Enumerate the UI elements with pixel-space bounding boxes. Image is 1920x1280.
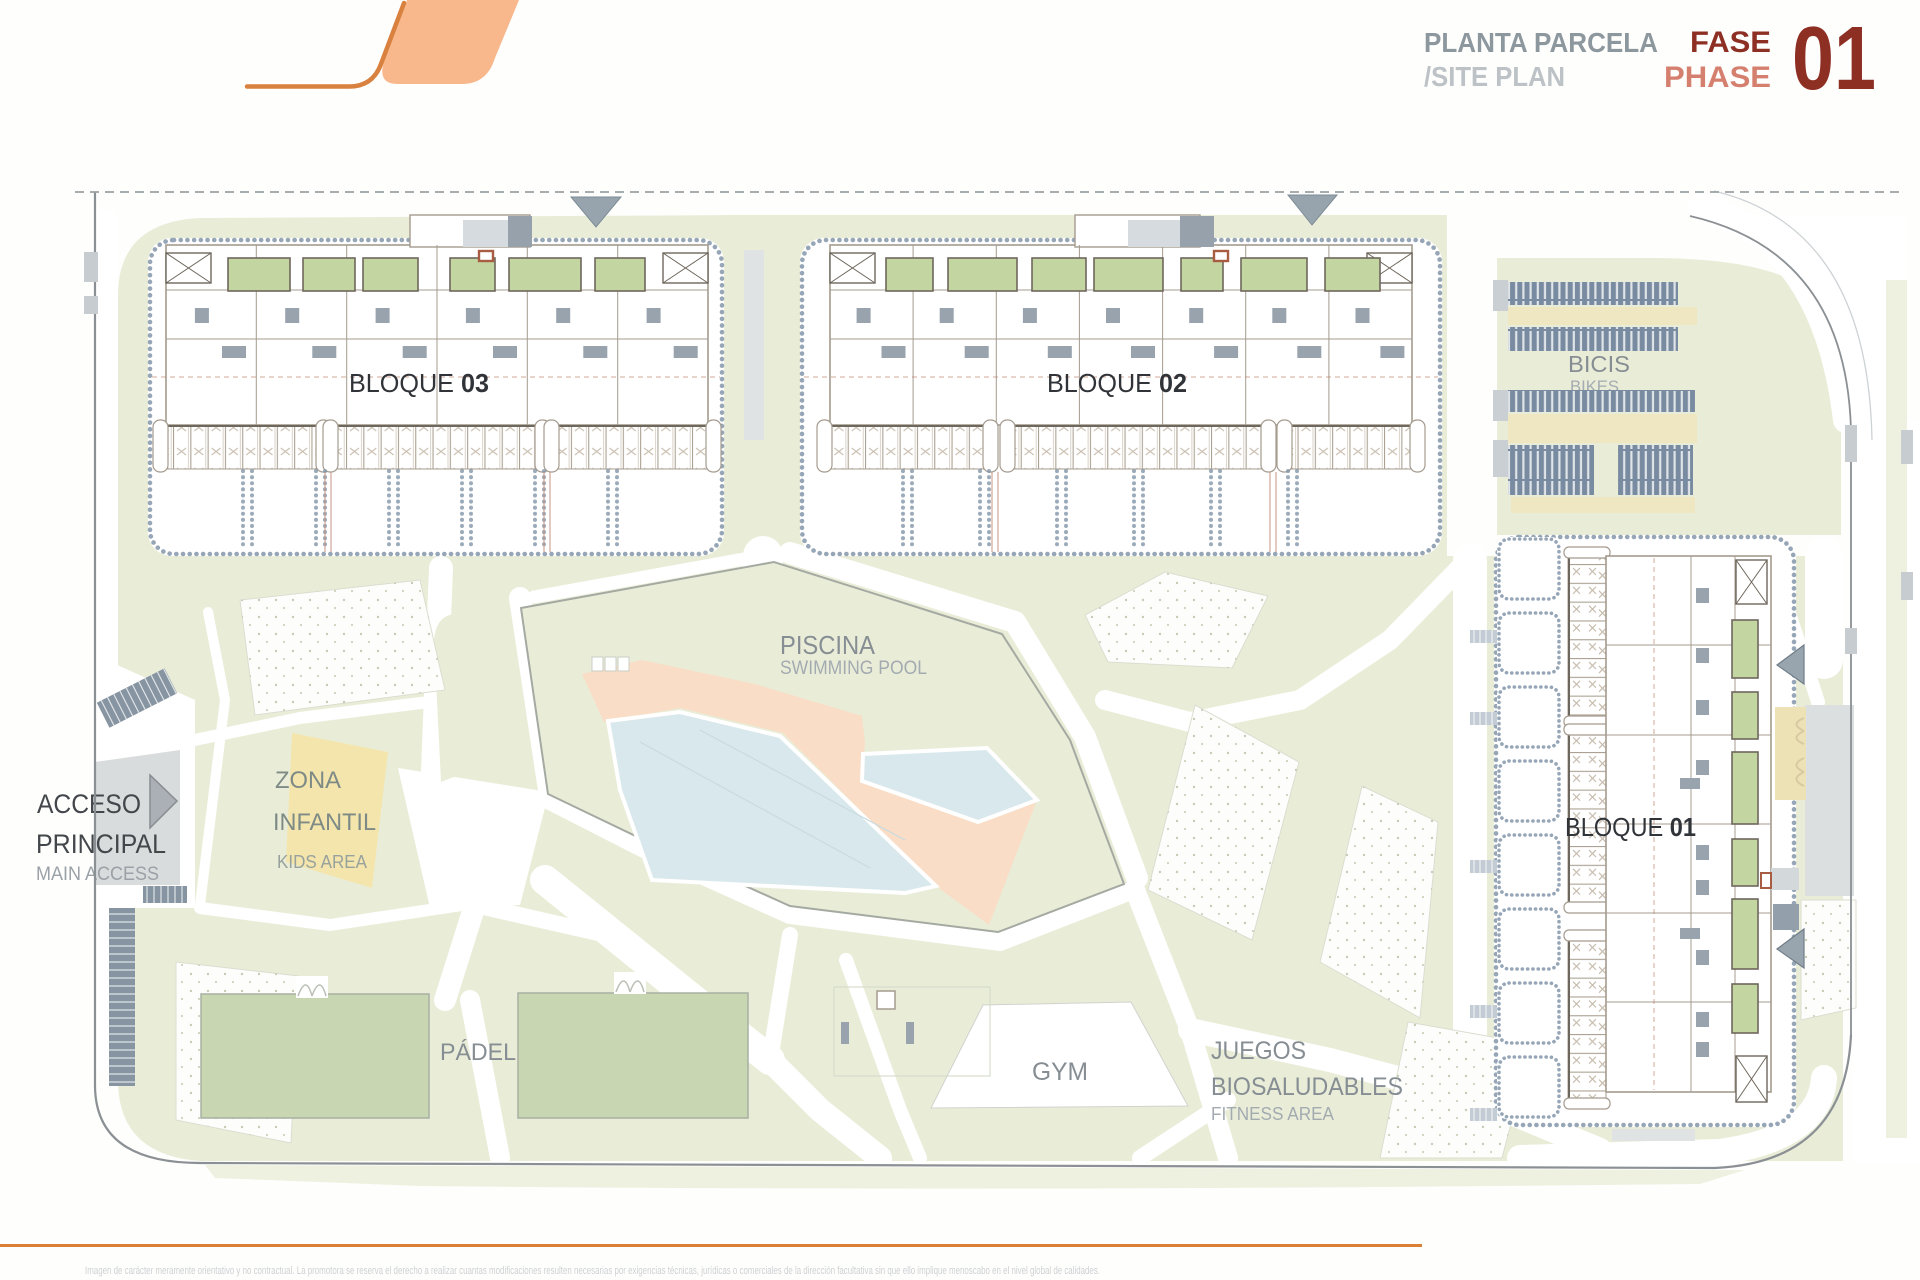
svg-text:JUEGOS: JUEGOS — [1211, 1037, 1306, 1065]
svg-text:FITNESS AREA: FITNESS AREA — [1211, 1104, 1334, 1124]
svg-text:BLOQUE 01: BLOQUE 01 — [1565, 812, 1696, 842]
svg-text:01: 01 — [1792, 9, 1876, 109]
svg-text:BIOSALUDABLES: BIOSALUDABLES — [1211, 1073, 1403, 1101]
svg-text:PLANTA PARCELA: PLANTA PARCELA — [1424, 27, 1658, 58]
svg-text:SWIMMING POOL: SWIMMING POOL — [780, 658, 927, 679]
svg-text:PHASE: PHASE — [1664, 61, 1771, 94]
svg-text:PRINCIPAL: PRINCIPAL — [36, 829, 166, 859]
svg-text:PÁDEL: PÁDEL — [440, 1039, 516, 1066]
svg-text:KIDS AREA: KIDS AREA — [277, 852, 367, 872]
svg-text:INFANTIL: INFANTIL — [273, 809, 376, 836]
svg-text:ZONA: ZONA — [275, 767, 341, 794]
svg-text:PISCINA: PISCINA — [780, 630, 876, 660]
svg-text:BICIS: BICIS — [1568, 351, 1630, 377]
svg-text:GYM: GYM — [1032, 1058, 1088, 1086]
svg-text:MAIN ACCESS: MAIN ACCESS — [36, 864, 159, 885]
svg-text:/SITE PLAN: /SITE PLAN — [1424, 61, 1565, 92]
svg-text:FASE: FASE — [1690, 26, 1771, 59]
svg-text:Imagen de carácter meramente o: Imagen de carácter meramente orientativo… — [85, 1265, 1100, 1277]
svg-text:BLOQUE 03: BLOQUE 03 — [349, 368, 489, 398]
svg-text:ACCESO: ACCESO — [37, 789, 141, 819]
svg-text:BLOQUE 02: BLOQUE 02 — [1047, 368, 1187, 398]
